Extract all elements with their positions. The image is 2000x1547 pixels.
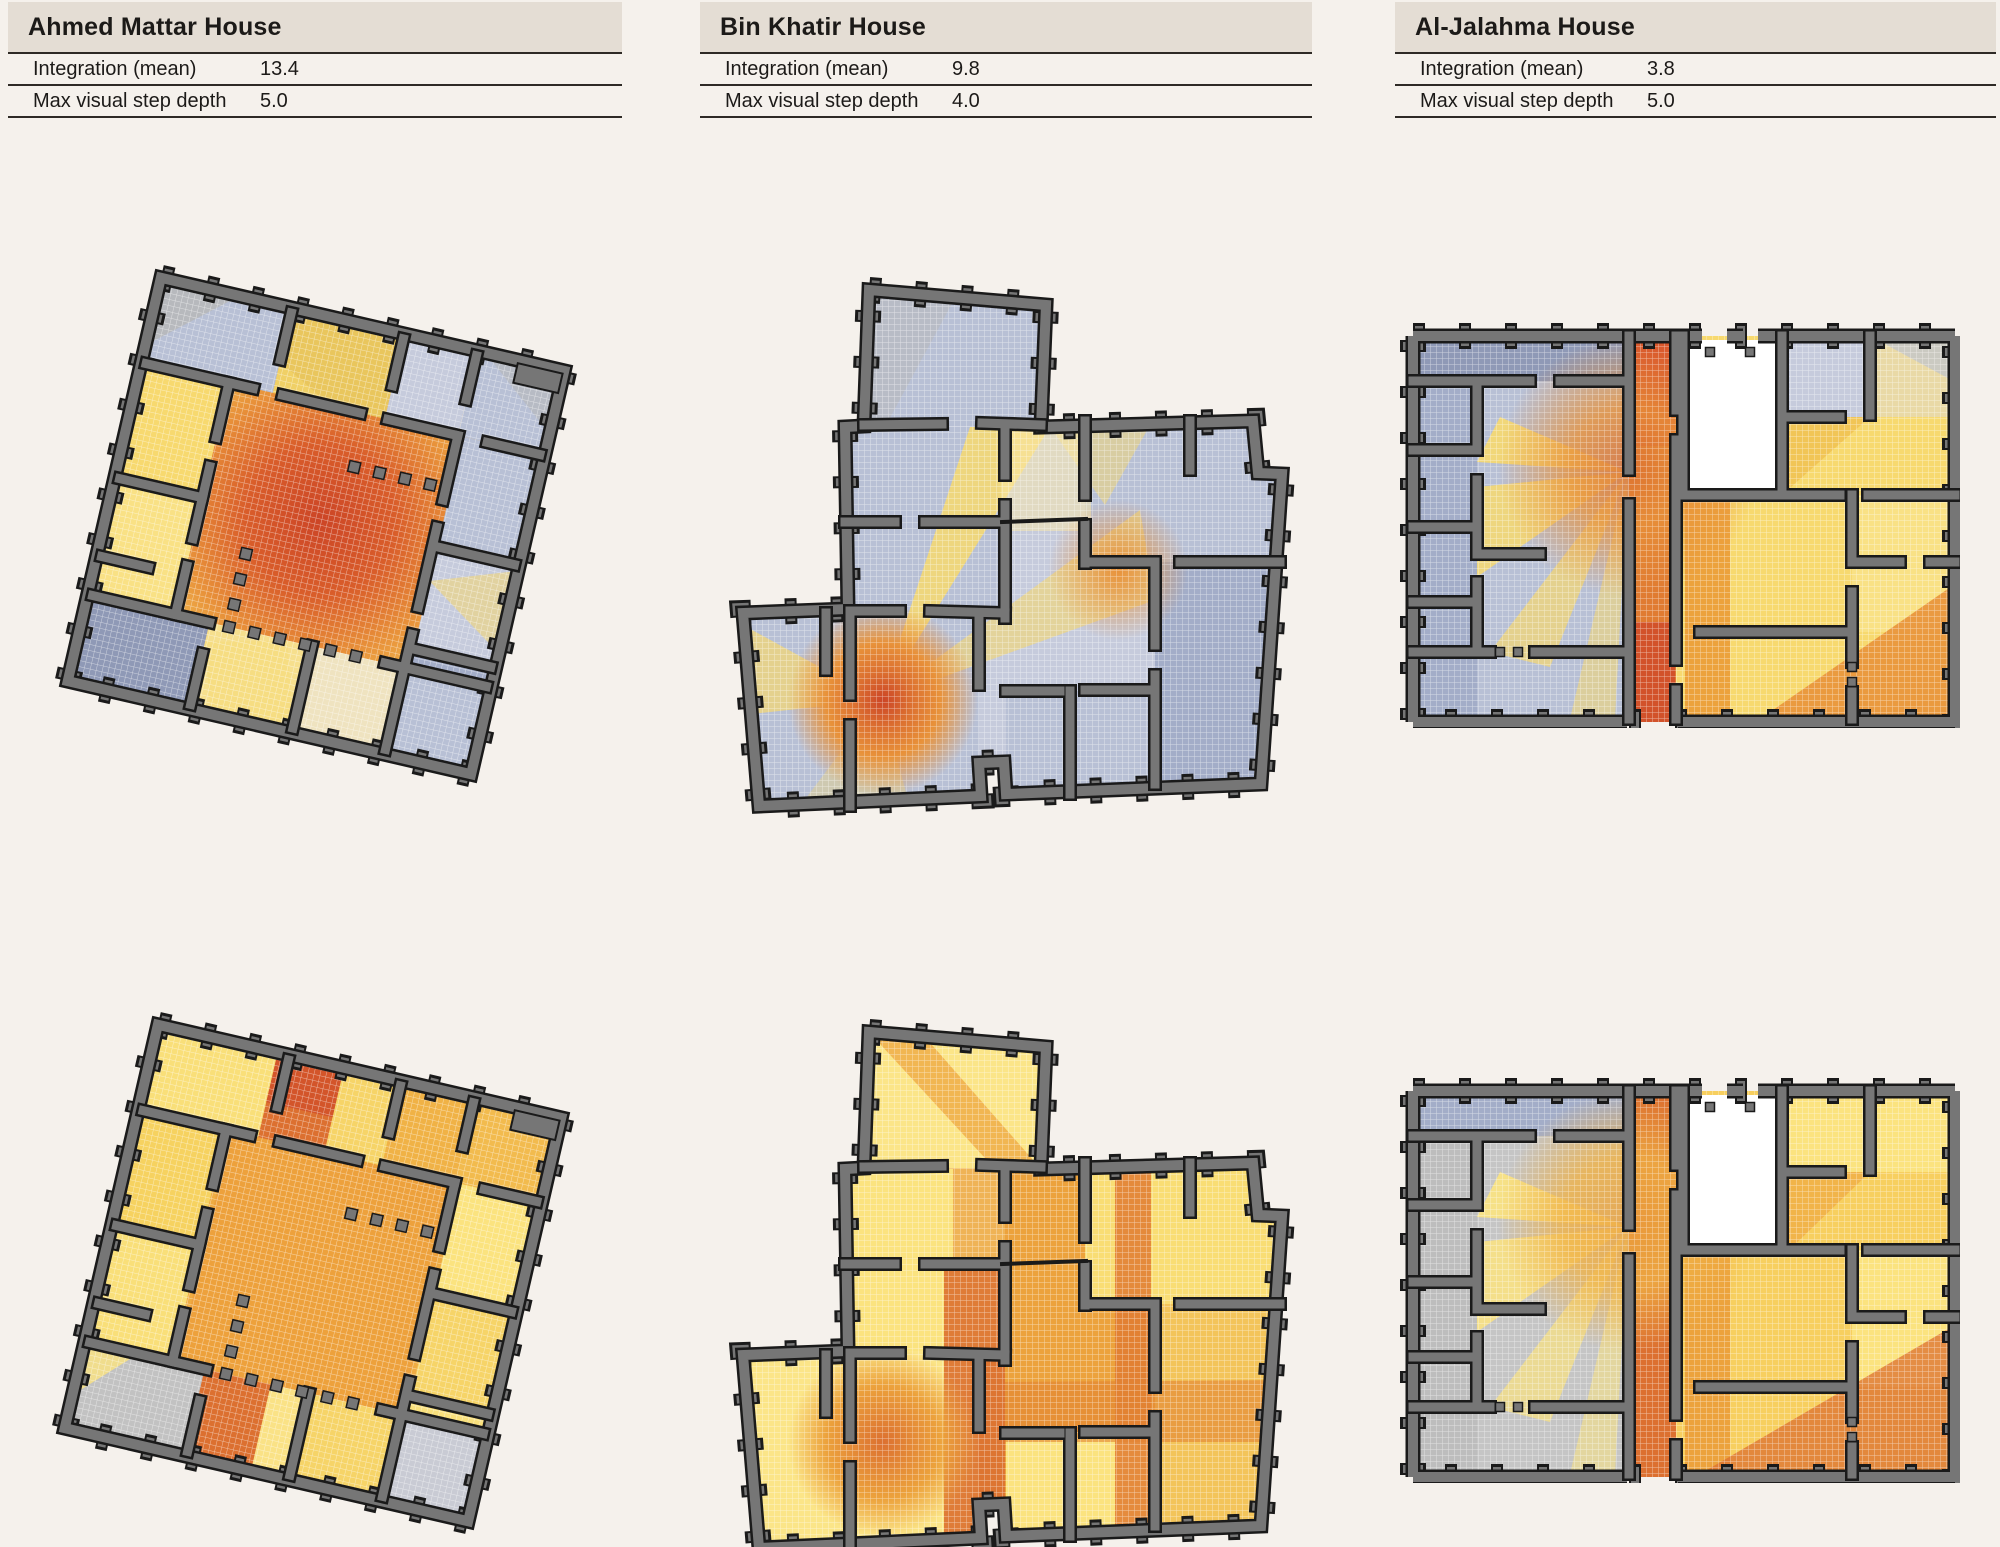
ahmed-mattar-integration-plan	[16, 238, 616, 838]
metric-label: Max visual step depth	[1420, 90, 1647, 113]
metric-row: Integration (mean) 3.8	[1395, 52, 1996, 84]
al-jalahma-integration-plan	[1400, 322, 1960, 728]
column-bin-khatir: Bin Khatir House Integration (mean) 9.8 …	[700, 2, 1312, 118]
metric-value: 3.8	[1647, 58, 1767, 81]
metric-row: Max visual step depth 4.0	[700, 84, 1312, 118]
house-title: Al-Jalahma House	[1395, 13, 1635, 42]
metric-value: 4.0	[952, 90, 1072, 113]
metric-value: 5.0	[1647, 90, 1767, 113]
metric-row: Max visual step depth 5.0	[8, 84, 622, 118]
metric-row: Integration (mean) 9.8	[700, 52, 1312, 84]
ahmed-mattar-step-depth-plan	[16, 985, 616, 1547]
house-header: Bin Khatir House	[700, 2, 1312, 52]
al-jalahma-step-depth-plan	[1400, 1077, 1960, 1483]
metric-label: Integration (mean)	[725, 58, 952, 81]
metric-label: Integration (mean)	[33, 58, 260, 81]
metric-value: 5.0	[260, 90, 380, 113]
column-al-jalahma: Al-Jalahma House Integration (mean) 3.8 …	[1395, 2, 1996, 118]
column-ahmed-mattar: Ahmed Mattar House Integration (mean) 13…	[8, 2, 622, 118]
metric-label: Max visual step depth	[33, 90, 260, 113]
house-header: Al-Jalahma House	[1395, 2, 1996, 52]
metric-row: Max visual step depth 5.0	[1395, 84, 1996, 118]
metric-value: 13.4	[260, 58, 380, 81]
figure-page: Ahmed Mattar House Integration (mean) 13…	[0, 0, 2000, 1547]
metric-label: Max visual step depth	[725, 90, 952, 113]
house-header: Ahmed Mattar House	[8, 2, 622, 52]
house-title: Bin Khatir House	[700, 13, 926, 42]
bin-khatir-integration-plan	[720, 270, 1300, 830]
metric-label: Integration (mean)	[1420, 58, 1647, 81]
metric-value: 9.8	[952, 58, 1072, 81]
bin-khatir-step-depth-plan	[720, 1012, 1300, 1547]
house-title: Ahmed Mattar House	[8, 13, 282, 42]
metric-row: Integration (mean) 13.4	[8, 52, 622, 84]
